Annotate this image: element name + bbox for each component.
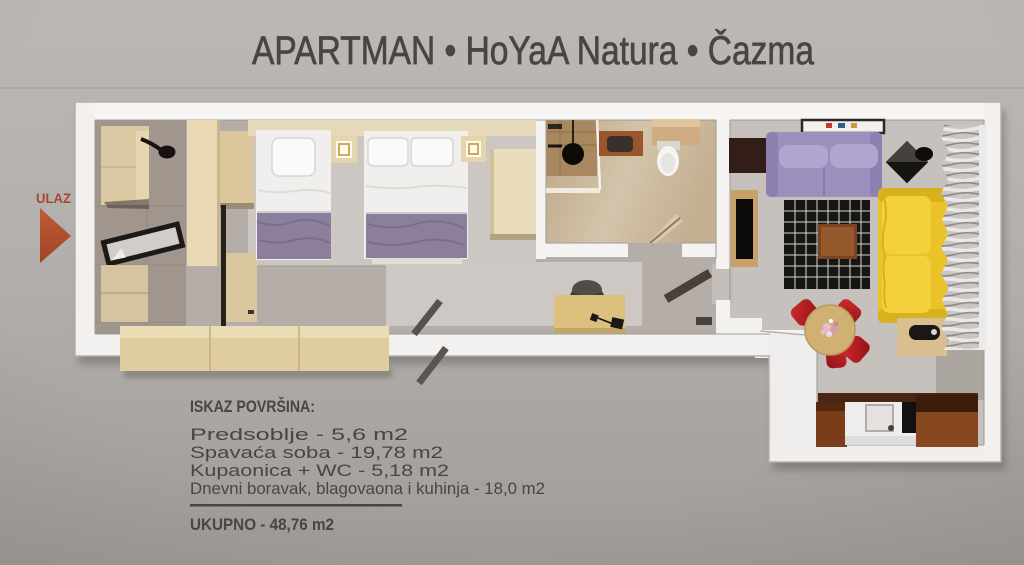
svg-text:APARTMAN • HoYaA Natura • Čazm: APARTMAN • HoYaA Natura • Čazma <box>252 28 815 73</box>
svg-text:ULAZ: ULAZ <box>36 190 71 206</box>
svg-text:Spavaća soba - 19,78 m2: Spavaća soba - 19,78 m2 <box>190 443 443 462</box>
svg-text:UKUPNO - 48,76 m2: UKUPNO - 48,76 m2 <box>190 515 334 534</box>
svg-text:ISKAZ POVRŠINA:: ISKAZ POVRŠINA: <box>190 397 315 416</box>
svg-text:Predsoblje - 5,6 m2: Predsoblje - 5,6 m2 <box>190 425 408 444</box>
svg-text:Kupaonica + WC - 5,18 m2: Kupaonica + WC - 5,18 m2 <box>190 461 449 480</box>
svg-text:Dnevni boravak, blagovaona i k: Dnevni boravak, blagovaona i kuhinja - 1… <box>190 479 545 498</box>
